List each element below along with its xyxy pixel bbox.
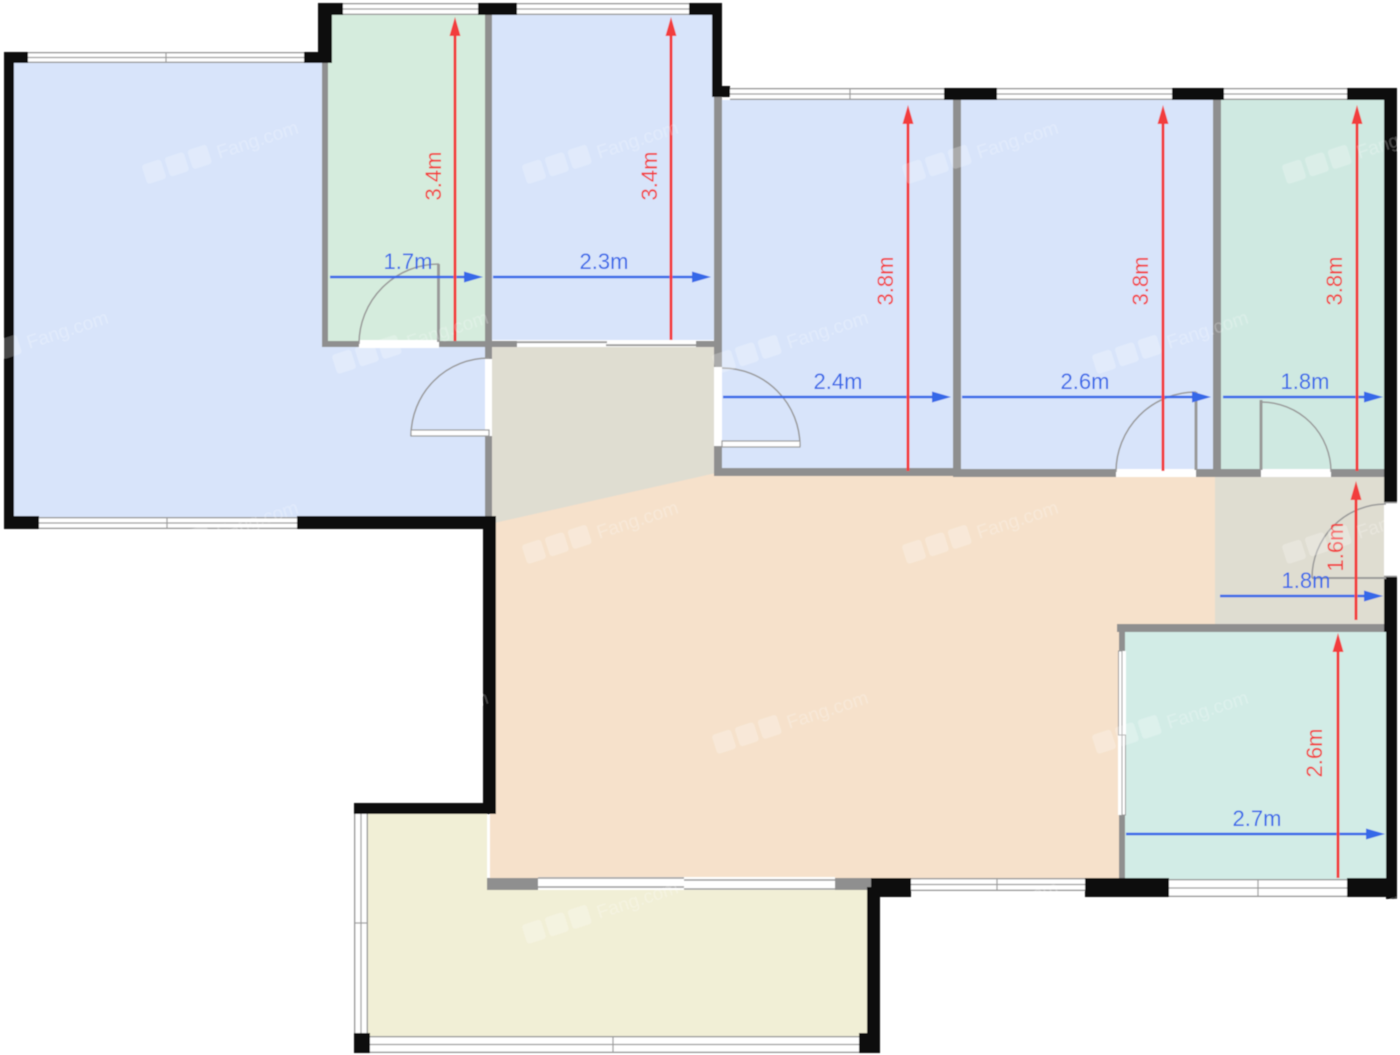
svg-text:3.8m: 3.8m: [1128, 257, 1153, 306]
svg-text:2.6m: 2.6m: [1302, 729, 1327, 778]
svg-text:3.4m: 3.4m: [637, 152, 662, 201]
svg-text:1.7m: 1.7m: [384, 249, 433, 274]
svg-text:3.4m: 3.4m: [421, 152, 446, 201]
svg-text:3.8m: 3.8m: [873, 257, 898, 306]
svg-text:3.8m: 3.8m: [1322, 257, 1347, 306]
svg-text:1.8m: 1.8m: [1281, 369, 1330, 394]
svg-text:2.3m: 2.3m: [580, 249, 629, 274]
svg-text:2.7m: 2.7m: [1233, 806, 1282, 831]
svg-text:2.4m: 2.4m: [814, 369, 863, 394]
